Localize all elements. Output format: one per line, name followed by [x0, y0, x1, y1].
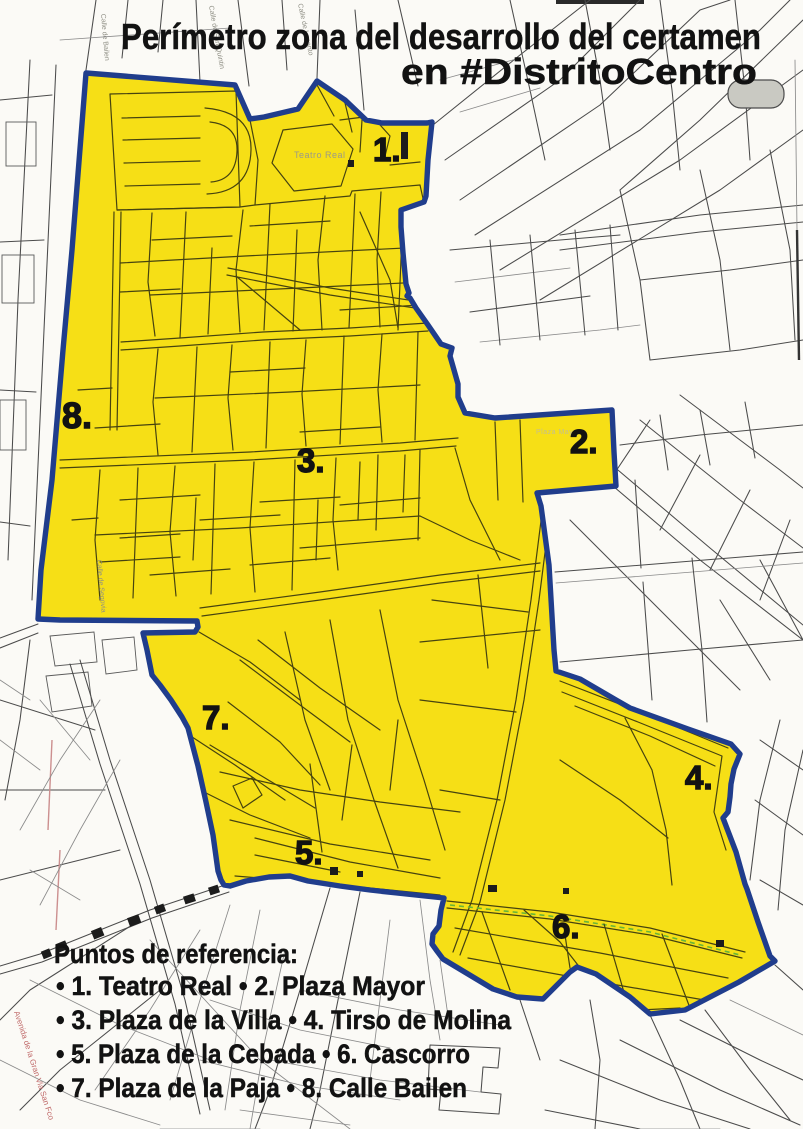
svg-text:4.: 4.	[685, 759, 713, 796]
svg-text:7.: 7.	[202, 699, 230, 736]
svg-text:8.: 8.	[62, 395, 92, 436]
svg-text:5.: 5.	[295, 834, 323, 871]
svg-text:Puntos de referencia:: Puntos de referencia:	[54, 939, 298, 969]
svg-text:• 3. Plaza de la Villa • 4. Ti: • 3. Plaza de la Villa • 4. Tirso de Mol…	[56, 1005, 512, 1035]
svg-text:• 7. Plaza de la Paja • 8. Cal: • 7. Plaza de la Paja • 8. Calle Bailen	[56, 1073, 467, 1103]
svg-text:• 5. Plaza de la Cebada • 6. C: • 5. Plaza de la Cebada • 6. Cascorro	[56, 1039, 470, 1069]
svg-text:• 1. Teatro Real • 2. Plaza Ma: • 1. Teatro Real • 2. Plaza Mayor	[56, 971, 425, 1001]
svg-text:3.: 3.	[297, 442, 325, 479]
svg-text:1.: 1.	[373, 131, 401, 168]
svg-text:2.: 2.	[570, 423, 598, 460]
svg-text:en #DistritoCentro: en #DistritoCentro	[401, 51, 757, 92]
svg-text:6.: 6.	[552, 908, 580, 945]
svg-text:Teatro Real: Teatro Real	[294, 150, 346, 160]
